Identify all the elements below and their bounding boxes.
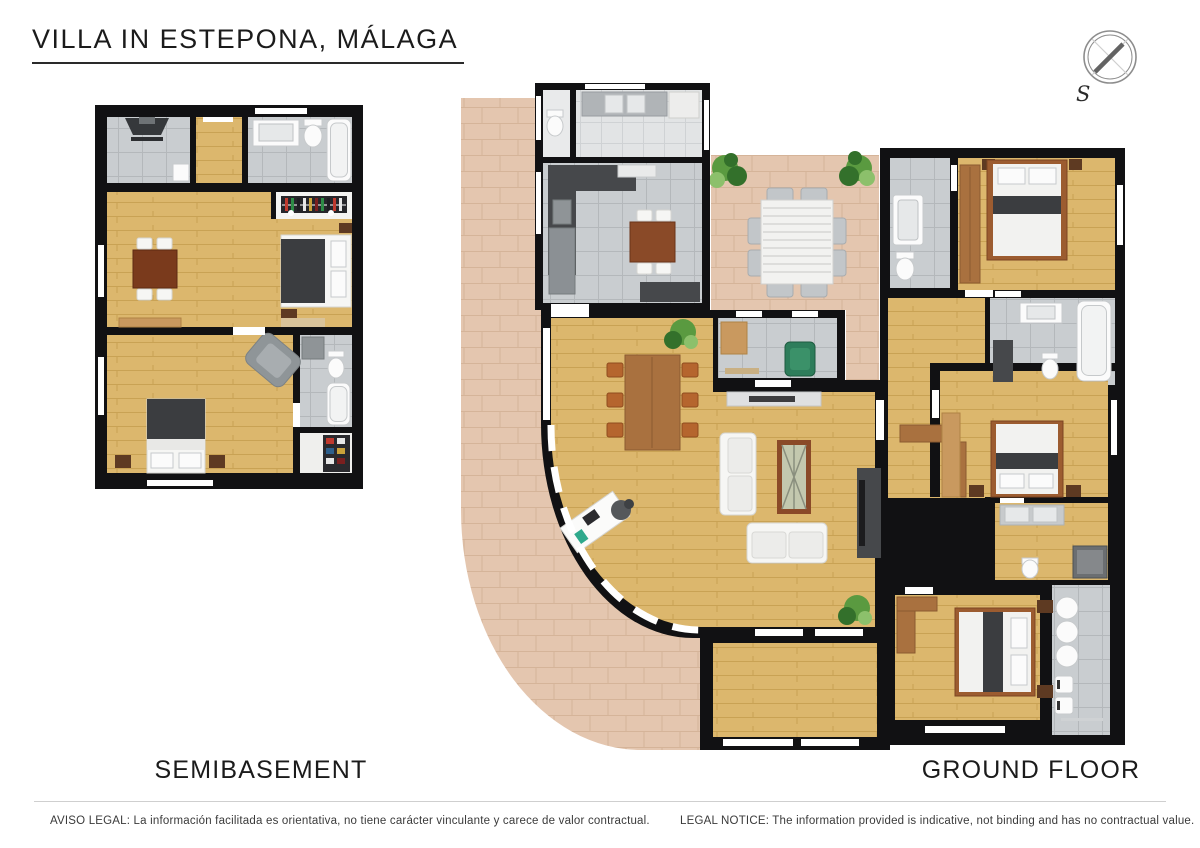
window xyxy=(801,739,859,746)
door-bathroomB xyxy=(995,291,1021,297)
utility-sink xyxy=(173,164,189,181)
footer-divider xyxy=(34,801,1166,802)
window xyxy=(1111,400,1117,455)
door-kitchen-living xyxy=(551,304,589,317)
double-bed-1 xyxy=(281,223,352,319)
shoe-row xyxy=(725,368,759,374)
window xyxy=(536,172,541,234)
bathroomA-toilet xyxy=(896,252,914,280)
window xyxy=(255,108,307,114)
semibasement-label: SEMIBASEMENT xyxy=(154,756,367,785)
ensuite-shower xyxy=(302,337,324,359)
semibasement-floorplan xyxy=(95,105,363,489)
tv-unit xyxy=(857,468,881,558)
bathroom1-toilet xyxy=(304,119,322,147)
bathroom1-bathtub xyxy=(327,119,351,181)
wc-toilet xyxy=(547,110,563,136)
outdoor-dining-table xyxy=(748,188,846,297)
window xyxy=(147,480,213,486)
window xyxy=(925,726,1005,733)
green-armchair xyxy=(785,342,815,376)
bathroom1-sink xyxy=(253,120,299,146)
living-dining-table xyxy=(607,355,698,450)
hall-cabinet-1 xyxy=(900,425,946,442)
door-ensuite xyxy=(293,403,300,427)
window xyxy=(98,245,104,297)
page-title: VILLA IN ESTEPONA, MÁLAGA xyxy=(32,24,464,64)
closet-shelves xyxy=(323,435,350,472)
door-bedroom1 xyxy=(965,290,993,297)
projection-appliance xyxy=(125,117,169,141)
laundry-units xyxy=(582,92,699,118)
door-mat xyxy=(281,318,325,327)
open-wardrobe xyxy=(271,192,352,219)
ground-floor-label: GROUND FLOOR xyxy=(922,756,1141,785)
door-bedroom2 xyxy=(233,327,265,335)
coat-rack xyxy=(721,322,747,354)
door-entry-2 xyxy=(792,311,818,317)
floor-plan-sheet: VILLA IN ESTEPONA, MÁLAGA xyxy=(0,0,1200,848)
door-bedroom2 xyxy=(932,390,939,418)
sideboard xyxy=(119,318,181,327)
door-bathroomC xyxy=(1000,498,1024,503)
room-bottom-left xyxy=(713,643,877,737)
window xyxy=(536,96,541,140)
window xyxy=(723,739,793,746)
room-hall xyxy=(196,117,242,183)
door-living-hallway xyxy=(876,400,884,440)
coffee-table xyxy=(777,440,811,514)
door-hall xyxy=(203,117,233,122)
sofa-horizontal xyxy=(747,523,827,563)
ground-floor-floorplan xyxy=(455,60,1135,755)
ensuite-toilet xyxy=(328,351,344,378)
window xyxy=(704,100,709,150)
door-bedroom3 xyxy=(905,587,933,594)
ensuite-bathtub xyxy=(327,383,350,425)
window-living-left xyxy=(543,328,550,420)
door-entry-1 xyxy=(736,311,762,317)
window xyxy=(815,629,863,636)
kitchen-unit xyxy=(640,282,700,302)
door-entry-living xyxy=(755,380,791,387)
window xyxy=(1117,185,1123,245)
fireplace-sideboard xyxy=(727,392,821,406)
aviso-legal-text: AVISO LEGAL: La información facilitada e… xyxy=(50,815,650,827)
window xyxy=(98,357,104,415)
legal-notice-text: LEGAL NOTICE: The information provided i… xyxy=(680,815,1194,827)
kitchen-ac-vent xyxy=(618,165,656,177)
window xyxy=(585,84,645,89)
door-bathroomA xyxy=(951,165,957,191)
sofa-vertical xyxy=(720,433,756,515)
window xyxy=(755,629,803,636)
bathroomA-shower-sink xyxy=(893,195,923,245)
